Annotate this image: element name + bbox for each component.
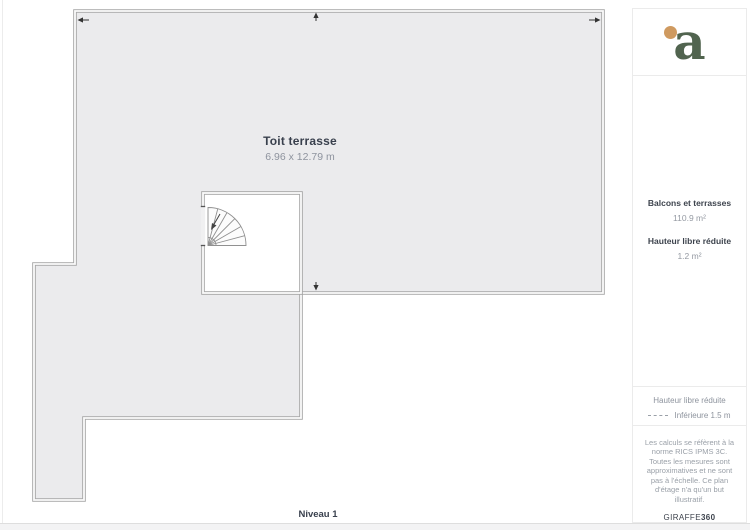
- logo-card: a: [633, 9, 746, 76]
- measurement-value: 1.2 m²: [633, 251, 746, 261]
- legend-row: Inférieure 1.5 m: [633, 411, 746, 420]
- logo-letter: a: [673, 12, 705, 71]
- dashed-line-sample: [648, 415, 668, 416]
- brand-name: GIRAFFE: [663, 513, 700, 522]
- measurement-row: Hauteur libre réduite 1.2 m²: [633, 236, 746, 261]
- stair-room-opening: [201, 207, 205, 246]
- floorplan-drawing: [0, 0, 630, 523]
- disclaimer-card: Les calculs se réfèrent à la norme RICS …: [633, 426, 746, 523]
- disclaimer-text: Les calculs se réfèrent à la norme RICS …: [640, 438, 739, 505]
- measurement-label: Hauteur libre réduite: [633, 236, 746, 246]
- giraffe360-brand: GIRAFFE360: [640, 513, 739, 522]
- measurements-card: Balcons et terrasses 110.9 m² Hauteur li…: [633, 76, 746, 386]
- agency-logo: a: [673, 17, 705, 67]
- measurement-row: Balcons et terrasses 110.9 m²: [633, 198, 746, 223]
- floorplan-page: Toit terrasse 6.96 x 12.79 m Niveau 1: [0, 0, 630, 523]
- legend-card: Hauteur libre réduite Inférieure 1.5 m: [633, 387, 746, 426]
- measurement-value: 110.9 m²: [633, 213, 746, 223]
- legend-title: Hauteur libre réduite: [633, 396, 746, 405]
- legend-item-label: Inférieure 1.5 m: [674, 411, 730, 420]
- page-bottom-strip: [0, 523, 750, 530]
- brand-suffix: 360: [701, 513, 716, 522]
- measurement-label: Balcons et terrasses: [633, 198, 746, 208]
- info-sidebar: a Balcons et terrasses 110.9 m² Hauteur …: [632, 8, 747, 523]
- terrace-floor: [34, 11, 603, 500]
- level-label: Niveau 1: [268, 509, 368, 520]
